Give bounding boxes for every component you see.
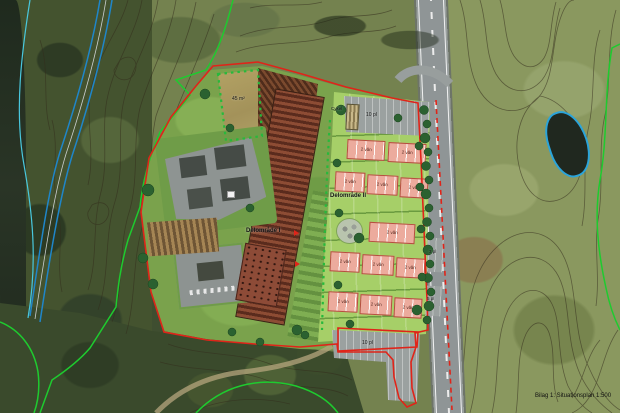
parking-label-north: 10 pl [366, 112, 377, 118]
parking-label-east-a: 3 pl [429, 249, 436, 254]
map-caption: Bilag 1: Situationsplan 1:500 [535, 393, 611, 399]
area-label-delomrade-2: Delområde II [330, 193, 366, 199]
access-road [398, 70, 450, 84]
area-label-delomrade-1: Delområde I [246, 228, 280, 234]
green-boundary [0, 0, 620, 413]
plan-overlay [0, 0, 620, 413]
parking-label-south: 10 pl [362, 340, 373, 346]
trees [138, 89, 435, 346]
bike-shed-label: Cykel [331, 106, 342, 111]
hedge-dots [218, 70, 330, 330]
dirt-path [156, 346, 332, 413]
red-plan-boundary [141, 62, 452, 410]
situationsplan-map: 2 vån 2 vån 2 vån 2 vån 2 vån 2 vån 2 vå… [0, 0, 620, 413]
field-area-label: 45 m² [232, 96, 245, 102]
parking-label-east-b: 5 pl [427, 296, 434, 301]
